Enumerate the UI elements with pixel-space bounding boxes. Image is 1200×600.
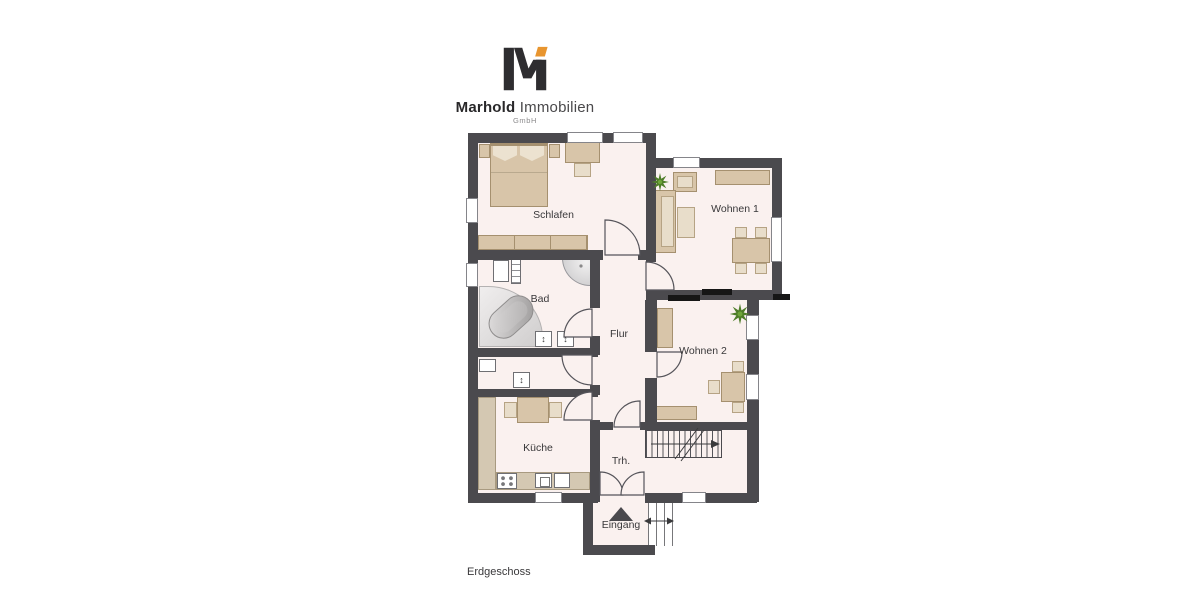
wall (645, 300, 657, 352)
room-label-flur: Flur (599, 328, 639, 340)
kitchen-table (517, 397, 549, 423)
shelf (657, 308, 673, 348)
window (746, 315, 759, 340)
chair (549, 402, 562, 418)
wall (772, 158, 782, 217)
chair (708, 380, 720, 394)
company-logo: Marhold Immobilien GmbH (450, 46, 600, 125)
coffee-table (677, 207, 695, 238)
room-label-wohnen1: Wohnen 1 (705, 203, 765, 215)
brand-name: Marhold Immobilien (450, 99, 600, 116)
brand-name-light: Immobilien (520, 99, 595, 116)
wall (706, 493, 757, 503)
wall (645, 493, 682, 503)
exterior-steps (648, 496, 674, 546)
wall (747, 340, 759, 374)
page: Marhold Immobilien GmbH ↕ ↕ ↕ (0, 0, 1200, 600)
wall (468, 493, 535, 503)
floor-title: Erdgeschoss (467, 566, 531, 578)
washbasin: ↕ (513, 372, 530, 388)
kitchen-sink (535, 473, 552, 488)
wall (468, 389, 598, 397)
window (746, 374, 759, 400)
chair (504, 402, 517, 418)
window (771, 217, 782, 262)
washbasin-arrow-icon: ↕ (541, 335, 546, 344)
wall (583, 545, 655, 555)
floor-plan: ↕ ↕ ↕ (455, 125, 800, 565)
room-label-wohnen2: Wohnen 2 (673, 345, 733, 357)
brand-name-bold: Marhold (456, 99, 516, 116)
window (682, 492, 706, 503)
window (673, 157, 700, 168)
washing-machine (493, 260, 509, 282)
chair (755, 227, 767, 238)
kitchen-counter-left (478, 397, 496, 490)
washbasin: ↕ (557, 331, 574, 347)
room-label-schlafen: Schlafen (523, 209, 584, 221)
staircase (645, 430, 722, 458)
desk (565, 140, 600, 163)
wall (468, 250, 603, 260)
window (567, 132, 603, 143)
stove (497, 473, 517, 489)
wall (646, 288, 656, 300)
wall (468, 348, 598, 357)
wall (747, 300, 759, 315)
wall (646, 158, 782, 168)
sideboard (651, 406, 697, 420)
dining-table (732, 238, 770, 263)
wall (590, 420, 600, 502)
chair (755, 263, 767, 274)
nightstand (479, 144, 490, 158)
window (466, 198, 478, 223)
washbasin: ↕ (535, 331, 552, 347)
room-label-bad: Bad (520, 293, 560, 305)
accent-wall (773, 294, 790, 300)
company-logo-icon (501, 46, 549, 97)
sofa-seat (661, 196, 674, 247)
blanket-line (491, 172, 547, 173)
nightstand (549, 144, 560, 158)
wall (646, 168, 656, 262)
chair (735, 227, 747, 238)
kitchen-unit (554, 473, 570, 488)
desk-chair (574, 163, 591, 177)
work-table (721, 372, 745, 402)
window (613, 132, 643, 143)
accent-wall (702, 289, 732, 295)
room-label-kueche: Küche (508, 442, 568, 454)
wall (640, 422, 757, 430)
brand-suffix: GmbH (450, 116, 600, 125)
bathroom-radiator (511, 258, 521, 284)
armchair-seat (677, 176, 693, 188)
washbasin-arrow-icon: ↕ (519, 376, 524, 385)
wardrobe (478, 235, 588, 250)
room-label-eingang: Eingang (591, 519, 651, 531)
window (466, 263, 478, 287)
sideboard (715, 170, 770, 185)
wall (590, 422, 613, 430)
accent-wall (668, 295, 700, 301)
wc-shelf (479, 359, 496, 372)
chair (735, 263, 747, 274)
chair (732, 402, 744, 413)
wall (590, 250, 600, 308)
room-label-treppenhaus: Trh. (601, 455, 641, 467)
washbasin-arrow-icon: ↕ (563, 335, 568, 344)
wall (747, 400, 759, 502)
sink-basin (540, 477, 550, 487)
window (535, 492, 562, 503)
chair (732, 361, 744, 372)
wall (468, 133, 478, 503)
